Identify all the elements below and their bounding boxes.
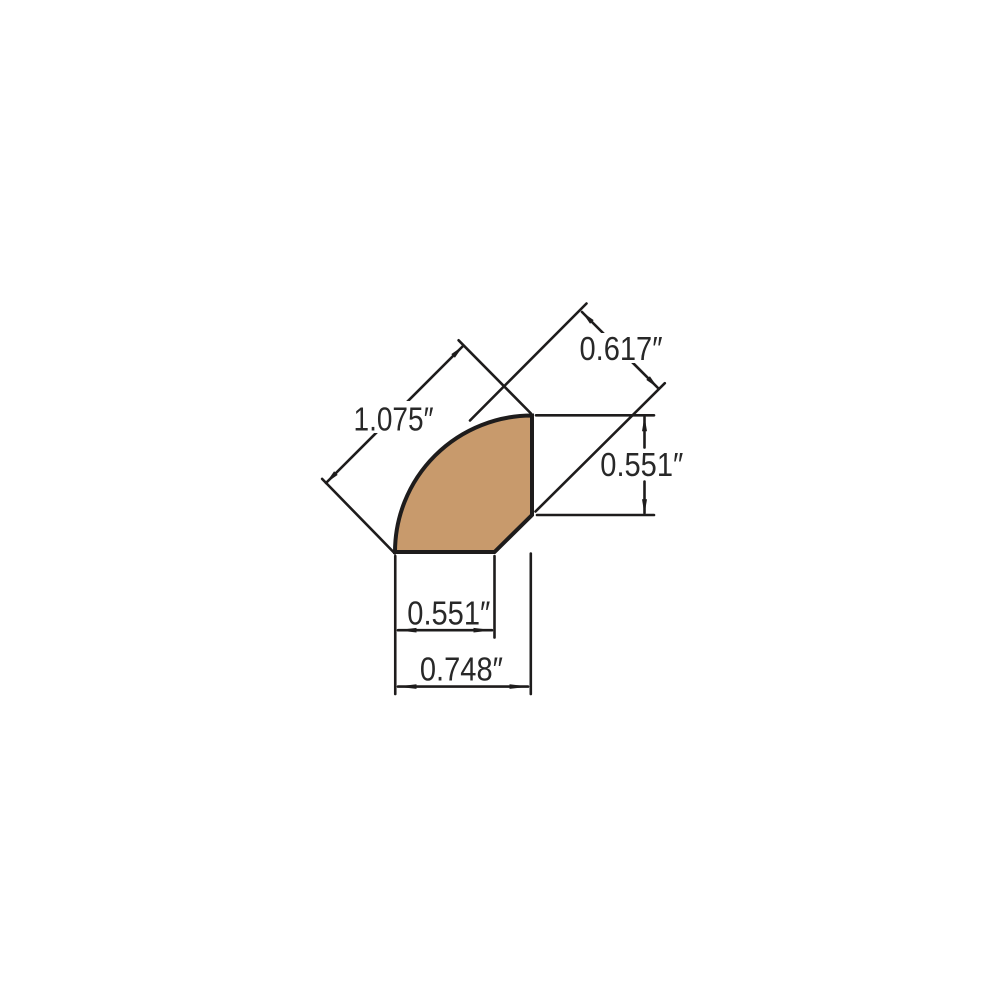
svg-text:1.075″: 1.075″: [354, 402, 434, 439]
svg-text:0.617″: 0.617″: [580, 331, 663, 368]
svg-text:0.748″: 0.748″: [420, 651, 503, 688]
svg-text:0.551″: 0.551″: [407, 595, 490, 632]
svg-text:0.551″: 0.551″: [600, 447, 683, 484]
